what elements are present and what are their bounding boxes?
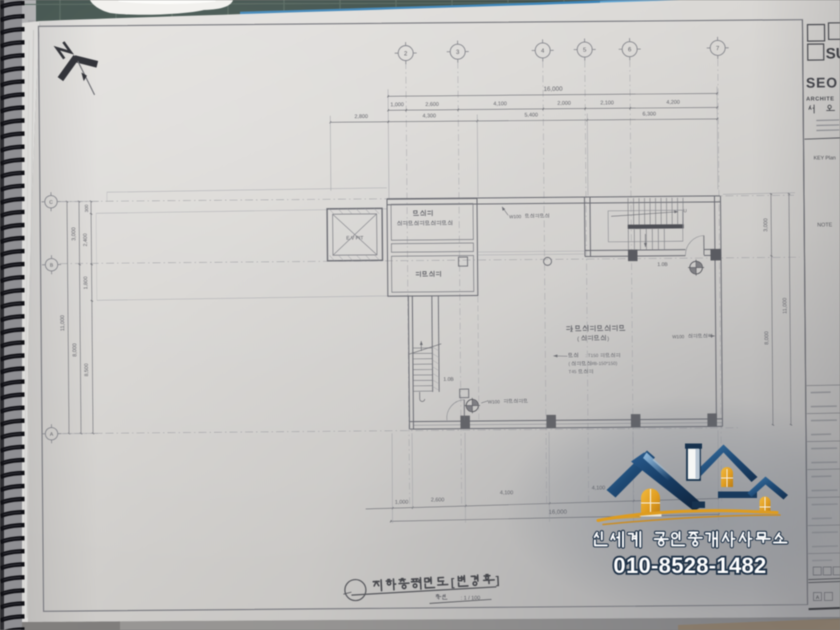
svg-text:2,000: 2,000 bbox=[557, 101, 571, 107]
svg-text:11,000: 11,000 bbox=[782, 298, 788, 314]
svg-text:C: C bbox=[49, 200, 53, 206]
svg-text:1,800: 1,800 bbox=[83, 276, 89, 289]
svg-text:4,200: 4,200 bbox=[666, 100, 680, 106]
svg-text:8,500: 8,500 bbox=[84, 363, 90, 376]
svg-text:W100: W100 bbox=[509, 214, 521, 219]
svg-text:ARCHITE: ARCHITE bbox=[806, 96, 834, 102]
svg-text:W100: W100 bbox=[488, 399, 500, 404]
svg-text:1,000: 1,000 bbox=[395, 500, 409, 506]
svg-text:): ) bbox=[607, 336, 609, 342]
svg-text:300: 300 bbox=[84, 204, 89, 212]
svg-text:T45: T45 bbox=[568, 369, 576, 374]
svg-text:1,000: 1,000 bbox=[390, 102, 404, 108]
svg-text:SU: SU bbox=[826, 45, 840, 62]
svg-text:2,600: 2,600 bbox=[425, 102, 439, 108]
svg-text:2,800: 2,800 bbox=[354, 114, 368, 120]
svg-text:: T150: : T150 bbox=[585, 353, 598, 358]
svg-text:010-8528-1482: 010-8528-1482 bbox=[613, 553, 766, 578]
svg-text:5,400: 5,400 bbox=[524, 112, 538, 118]
svg-text:3,000: 3,000 bbox=[71, 227, 77, 241]
svg-text:1.0B: 1.0B bbox=[657, 262, 668, 268]
svg-text:#B-150*150): #B-150*150) bbox=[591, 361, 617, 366]
svg-text:(: ( bbox=[577, 337, 579, 343]
svg-text:6,300: 6,300 bbox=[642, 111, 656, 117]
svg-text:1.0B: 1.0B bbox=[443, 377, 454, 383]
svg-text:16,000: 16,000 bbox=[544, 86, 564, 93]
svg-text:11,000: 11,000 bbox=[60, 315, 66, 331]
svg-text:3,000: 3,000 bbox=[763, 218, 769, 232]
svg-text:U: U bbox=[683, 208, 686, 213]
svg-text:W100: W100 bbox=[672, 334, 684, 339]
svg-text:KEY Plan: KEY Plan bbox=[814, 155, 836, 161]
svg-text:E.V PIT: E.V PIT bbox=[346, 235, 363, 241]
svg-text:SEO L: SEO L bbox=[806, 74, 840, 90]
svg-text:2,100: 2,100 bbox=[600, 100, 614, 106]
svg-text:2,400: 2,400 bbox=[83, 233, 89, 246]
svg-text:2,600: 2,600 bbox=[431, 497, 445, 503]
svg-text:8,000: 8,000 bbox=[72, 343, 78, 357]
svg-text:NOTE: NOTE bbox=[817, 222, 832, 228]
svg-text:4,300: 4,300 bbox=[422, 113, 436, 119]
svg-text:4,100: 4,100 bbox=[493, 101, 507, 107]
svg-text:8,000: 8,000 bbox=[764, 331, 770, 345]
